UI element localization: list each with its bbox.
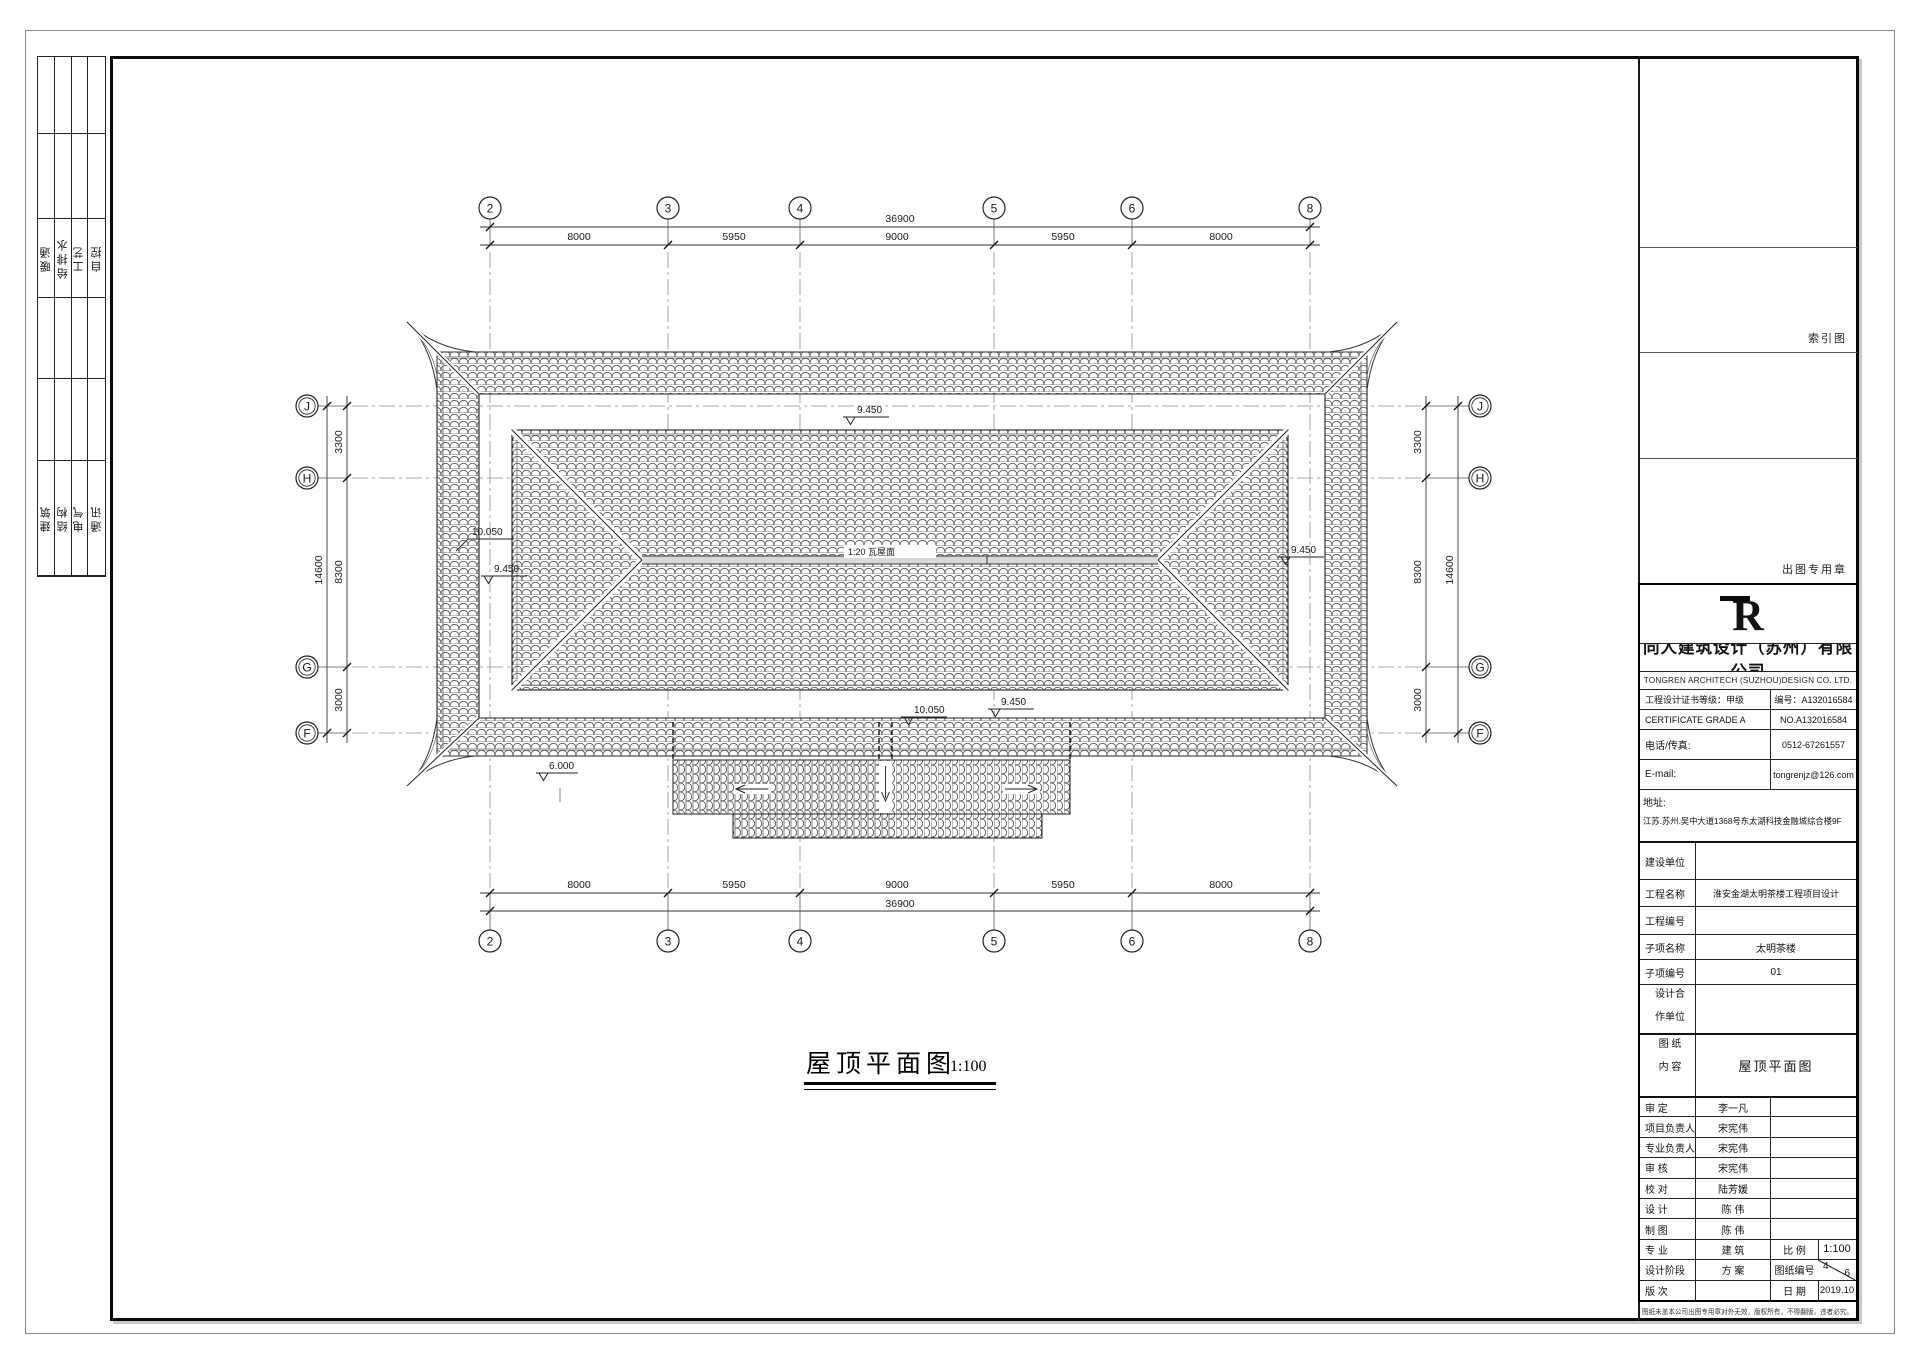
svg-text:9000: 9000: [885, 879, 909, 891]
roof-plan-svg: 1:20 瓦屋面: [0, 0, 1920, 1358]
svg-text:3: 3: [665, 935, 672, 949]
svg-text:3300: 3300: [333, 430, 345, 454]
svg-text:2: 2: [487, 202, 494, 216]
ridge-slope-label: 1:20 瓦屋面: [848, 547, 895, 557]
svg-text:5950: 5950: [722, 879, 746, 891]
svg-text:3000: 3000: [1412, 688, 1424, 712]
elevation-bottom-right: 9.450: [1001, 697, 1026, 708]
svg-text:5: 5: [991, 935, 998, 949]
svg-text:G: G: [302, 661, 311, 675]
title-underline: [804, 1082, 996, 1085]
svg-text:5950: 5950: [1051, 231, 1075, 243]
drawing-title: 屋顶平面图: [806, 1044, 956, 1080]
svg-text:F: F: [303, 727, 310, 741]
svg-text:F: F: [1476, 727, 1483, 741]
svg-text:8: 8: [1307, 202, 1314, 216]
svg-text:J: J: [1477, 400, 1483, 414]
svg-text:3000: 3000: [333, 688, 345, 712]
dim-right-total: 14600: [1444, 555, 1456, 584]
svg-text:5: 5: [991, 202, 998, 216]
svg-text:9000: 9000: [885, 231, 909, 243]
svg-text:5950: 5950: [1051, 879, 1075, 891]
drawing-sheet: 暖通 给排水 工艺 自控 建筑 结构 电气 通讯 索引图 出图专用章 R 同人建…: [0, 0, 1920, 1358]
svg-text:H: H: [303, 472, 312, 486]
svg-text:2: 2: [487, 935, 494, 949]
dim-top-total: 36900: [885, 213, 914, 225]
svg-text:6: 6: [1129, 202, 1136, 216]
svg-text:4: 4: [797, 935, 804, 949]
svg-text:3: 3: [665, 202, 672, 216]
elevation-porch: 6.000: [549, 761, 574, 772]
svg-text:G: G: [1475, 661, 1484, 675]
svg-text:8000: 8000: [567, 231, 591, 243]
svg-text:3300: 3300: [1412, 430, 1424, 454]
svg-text:6: 6: [1129, 935, 1136, 949]
svg-text:J: J: [304, 400, 310, 414]
dim-left-total: 14600: [313, 555, 325, 584]
elevation-left-upper: 10.050: [472, 527, 503, 538]
svg-text:8: 8: [1307, 935, 1314, 949]
svg-text:8000: 8000: [567, 879, 591, 891]
dim-bottom-total: 36900: [885, 898, 914, 910]
elevation-right: 9.450: [1291, 545, 1316, 556]
drawing-scale: 1:100: [950, 1058, 986, 1076]
svg-text:5950: 5950: [722, 231, 746, 243]
elevation-bottom-left: 10.050: [914, 705, 945, 716]
svg-text:8000: 8000: [1209, 231, 1233, 243]
svg-text:8300: 8300: [1412, 560, 1424, 584]
svg-text:H: H: [1476, 472, 1485, 486]
svg-text:4: 4: [797, 202, 804, 216]
svg-text:8000: 8000: [1209, 879, 1233, 891]
elevation-top: 9.450: [857, 405, 882, 416]
elevation-left-lower: 9.450: [494, 564, 519, 575]
svg-text:8300: 8300: [333, 560, 345, 584]
